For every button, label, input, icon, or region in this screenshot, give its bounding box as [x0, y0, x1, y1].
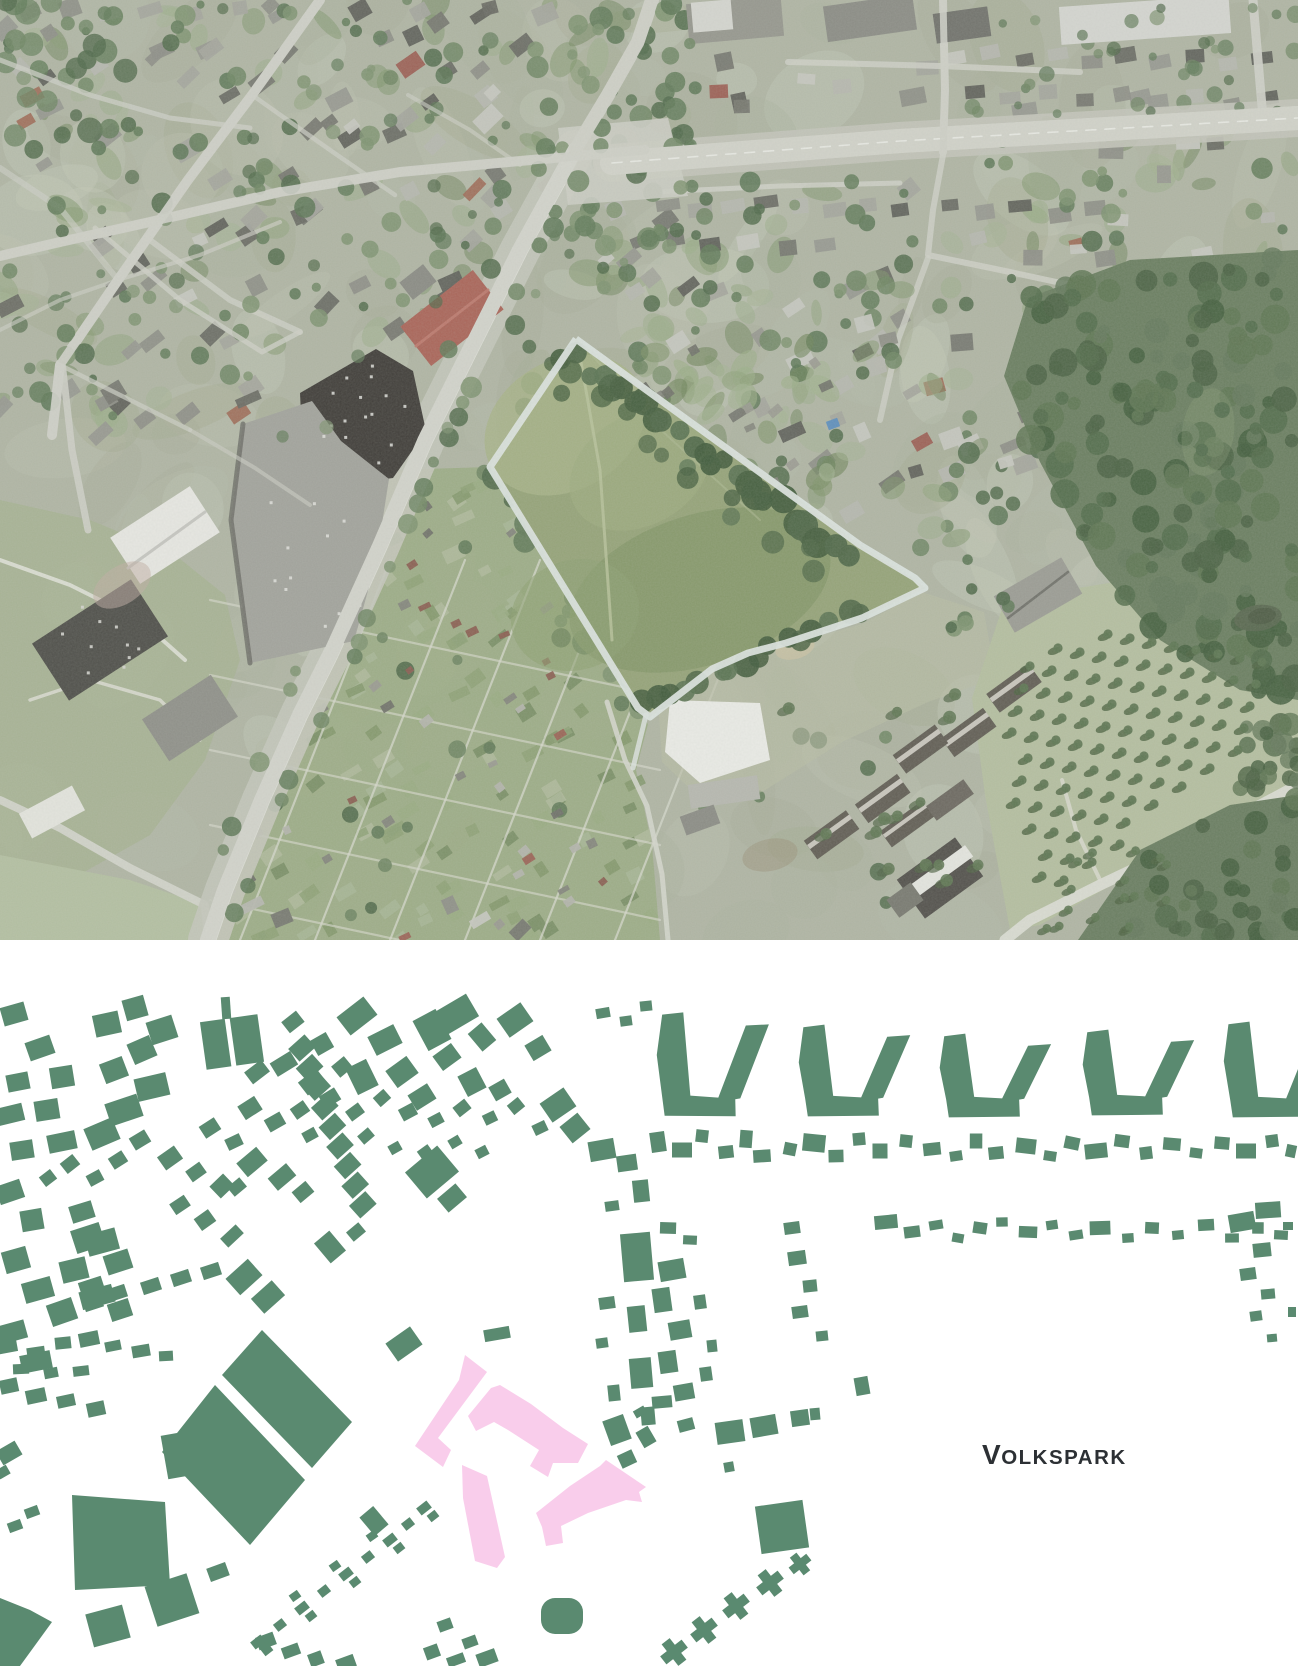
- svg-text:VOLKSPARK: VOLKSPARK: [982, 1439, 1127, 1470]
